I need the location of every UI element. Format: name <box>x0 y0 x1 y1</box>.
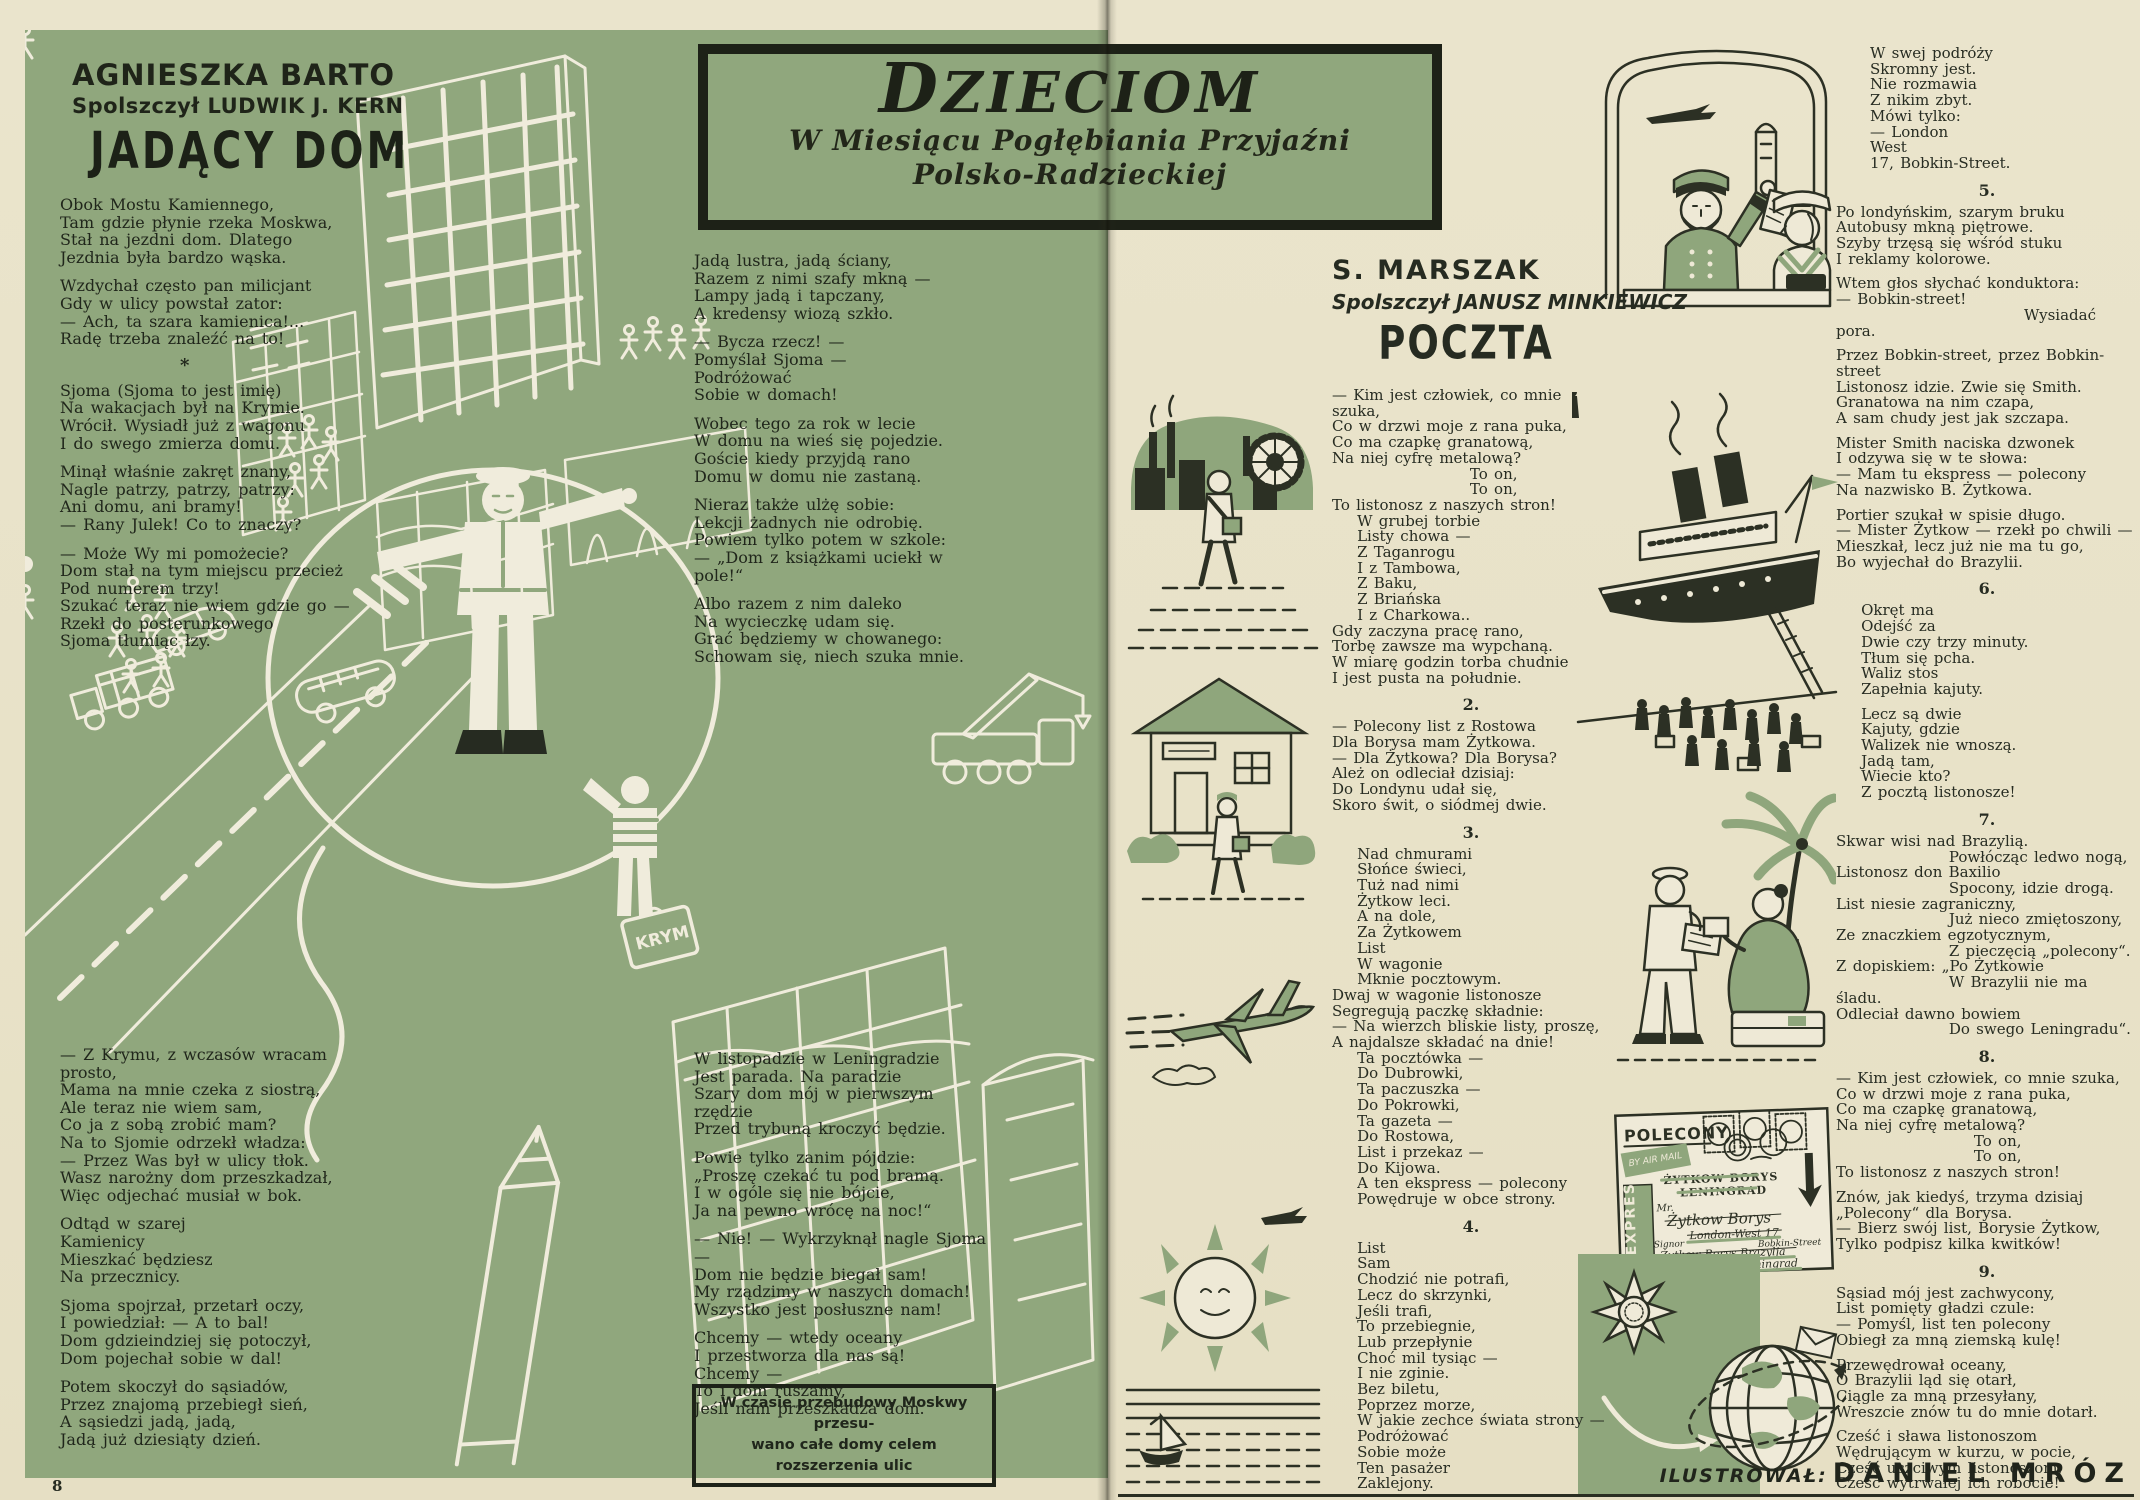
stanza: W listopadzie w Leningradzie Jest parada… <box>694 1050 999 1138</box>
stanza: Wobec tego za rok w lecie W domu na wieś… <box>694 415 994 485</box>
left-page-background: KRYM <box>25 30 1108 1478</box>
editor-note-box: W czasie przebudowy Moskwy przesu- wano … <box>692 1384 996 1487</box>
masthead-title: DZIECIOM <box>708 58 1432 124</box>
left-translator: Spolszczył LUDWIK J. KERN <box>72 94 404 118</box>
post-station-illustration <box>1123 655 1321 905</box>
section-number: 4. <box>1332 1217 1610 1236</box>
stanza: — Kim jest człowiek, co mnie szuka, Co w… <box>1836 1071 2138 1181</box>
stanza: Sjoma spojrzał, przetarł oczy, I powiedz… <box>60 1297 360 1367</box>
stanza: Portier szukał w spisie długo. — Mister … <box>1836 508 2138 571</box>
pencil-art <box>457 1123 566 1474</box>
stanza: Powie tylko zanim pójdzie: „Proszę czeka… <box>694 1149 999 1219</box>
stanza: Skwar wisi nad Brazylią. Powłócząc ledwo… <box>1836 834 2138 1038</box>
stanza: Albo razem z nim daleko Na wycieczkę uda… <box>694 595 994 665</box>
jet-plane-illustration <box>1123 935 1323 1120</box>
envelope-polecony-label: POLECONY <box>1624 1123 1729 1146</box>
stanza: List Sam Chodzić nie potrafi, Lecz do sk… <box>1332 1241 1610 1492</box>
page-fold <box>1097 0 1117 1500</box>
stanza: Przewędrował oceany, O Brazylii ląd się … <box>1836 1358 2138 1421</box>
stanza: Obok Mostu Kamiennego, Tam gdzie płynie … <box>60 196 352 266</box>
stanza: — Kim jest człowiek, co mnie szuka, Co w… <box>1332 388 1610 686</box>
stanza: Wtem głos słychać konduktora: — Bobkin-s… <box>1836 276 2138 339</box>
note-line-2: wano całe domy celem rozszerzenia ulic <box>751 1437 936 1474</box>
steamship-illustration <box>1572 392 1842 774</box>
illustrator-credit-name: DANIEL MRÓZ <box>1833 1458 2132 1489</box>
stanza: Po londyńskim, szarym bruku Autobusy mkn… <box>1836 205 2138 268</box>
stanza: — Z Krymu, z wczasów wracam prosto, Mama… <box>60 1046 360 1204</box>
suitcase-label: KRYM <box>634 922 692 955</box>
section-number: 5. <box>1836 181 2138 200</box>
stanza: — Polecony list z Rostowa Dla Borysa mam… <box>1332 719 1610 813</box>
stanza: W swej podróży Skromny jest. Nie rozmawi… <box>1870 46 2138 172</box>
stanza: — Bycza rzecz! — Pomyślał Sjoma — Podróż… <box>694 333 994 403</box>
right-translator: Spolszczył JANUSZ MINKIEWICZ <box>1332 290 1687 314</box>
stanza: Nad chmurami Słońce świeci, Tuż nad nimi… <box>1332 847 1610 1208</box>
sea-sun-plane-illustration <box>1123 1180 1323 1498</box>
bottom-rule <box>1118 1494 2134 1497</box>
left-column-1-bottom: — Z Krymu, z wczasów wracam prosto, Mama… <box>60 1046 360 1459</box>
stanza: Okręt ma Odejść za Dwie czy trzy minuty.… <box>1836 603 2138 697</box>
right-column-2: W swej podróży Skromny jest. Nie rozmawi… <box>1836 46 2138 1500</box>
toy-truck-art <box>933 674 1090 783</box>
stanza: Potem skoczył do sąsiadów, Przez znajomą… <box>60 1378 360 1448</box>
magazine-spread: KRYM <box>0 0 2140 1500</box>
masthead-box: DZIECIOM W Miesiącu Pogłębiania Przyjaźn… <box>698 44 1442 230</box>
note-line-1: W czasie przebudowy Moskwy przesu- <box>721 1395 968 1432</box>
stanza: Mister Smith naciska dzwonek I odzywa si… <box>1836 436 2138 499</box>
brazil-palm-illustration <box>1578 772 1836 1077</box>
boy-art: KRYM <box>583 776 699 969</box>
stanza-separator: * <box>180 359 352 373</box>
left-author: AGNIESZKA BARTO <box>72 58 395 92</box>
masthead-subtitle-2: Polsko-Radzieckiej <box>708 158 1432 192</box>
factory-postman-illustration <box>1123 360 1321 652</box>
stanza: Sjoma (Sjoma to jest imię) Na wakacjach … <box>60 382 352 452</box>
stanza: Przez Bobkin-street, przez Bobkin-street… <box>1836 348 2138 427</box>
stanza: Odtąd w szarej Kamienicy Mieszkać będzie… <box>60 1215 360 1285</box>
stanza: Wzdychał często pan milicjant Gdy w ulic… <box>60 277 352 347</box>
stanza: — Może Wy mi pomożecie? Dom stał na tym … <box>60 545 352 651</box>
masthead-subtitle-1: W Miesiącu Pogłębiania Przyjaźni <box>708 124 1432 158</box>
left-column-1-top: Obok Mostu Kamiennego, Tam gdzie płynie … <box>60 196 352 661</box>
illustrator-credit: ILUSTROWAŁ: DANIEL MRÓZ <box>1600 1458 2132 1489</box>
section-number: 3. <box>1332 823 1610 842</box>
stanza: Lecz są dwie Kajuty, gdzie Walizek nie w… <box>1836 707 2138 801</box>
page-number: 8 <box>52 1477 62 1495</box>
stanza: Nieraz także ulżę sobie: Lekcji żadnych … <box>694 496 994 584</box>
left-column-2-bottom: W listopadzie w Leningradzie Jest parada… <box>694 1050 999 1428</box>
stan­za: Znów, jak kiedyś, trzyma dzisiaj „Poleco… <box>1836 1190 2138 1253</box>
right-poem-title: POCZTA <box>1330 316 1602 370</box>
left-poem-title: JADĄCY DOM <box>90 122 409 181</box>
section-number: 2. <box>1332 695 1610 714</box>
stanza: — Nie! — Wykrzyknął nagle Sjoma — Dom ni… <box>694 1230 999 1318</box>
right-column-1: — Kim jest człowiek, co mnie szuka, Co w… <box>1332 388 1610 1500</box>
stanza: Sąsiad mój jest zachwycony, List pomięty… <box>1836 1286 2138 1349</box>
section-number: 8. <box>1836 1047 2138 1066</box>
section-number: 7. <box>1836 810 2138 829</box>
left-column-2-top: Jadą lustra, jadą ściany, Razem z nimi s… <box>694 252 994 676</box>
stanza: Minął właśnie zakręt znany, Nagle patrzy… <box>60 463 352 533</box>
right-author: S. MARSZAK <box>1332 255 1541 286</box>
section-number: 9. <box>1836 1262 2138 1281</box>
ticket-window-illustration <box>1588 38 1843 310</box>
stanza: Jadą lustra, jadą ściany, Razem z nimi s… <box>694 252 994 322</box>
illustrator-credit-label: ILUSTROWAŁ: <box>1660 1465 1828 1487</box>
envelope-expres-label: EXPRES <box>1622 1182 1641 1256</box>
section-number: 6. <box>1836 579 2138 598</box>
